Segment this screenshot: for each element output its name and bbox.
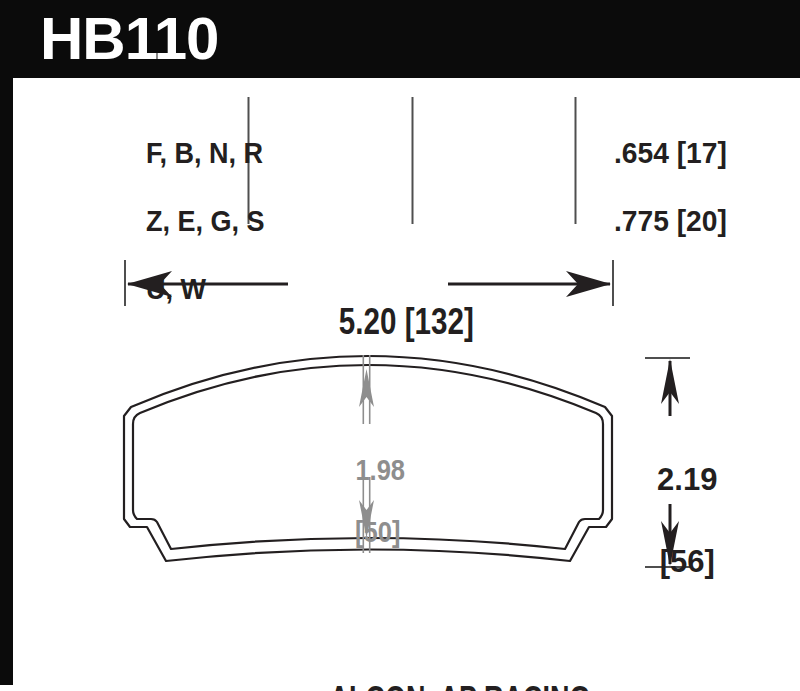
compound-line-1: F, B, N, R <box>146 136 263 169</box>
caliper-applications-caption: ALCON, AP RACING <box>246 643 580 691</box>
compound-codes-lines: F, B, N, R Z, E, G, S U, W <box>146 136 265 306</box>
compound-line-2: Z, E, G, S <box>146 204 265 237</box>
height-dimension-label: 2.19 [56] <box>610 418 730 623</box>
spec-sheet: HB110 <box>0 0 800 691</box>
pad-thickness-lines: .654 [17] .775 [20] <box>614 136 727 238</box>
compound-line-3: U, W <box>146 272 206 305</box>
center-mm: [50] <box>355 517 400 548</box>
center-dimension-label: 1.98 [50] <box>320 424 380 579</box>
width-dimension-label: 5.20 [132] <box>281 262 455 382</box>
table-divider-rules <box>249 97 576 224</box>
compound-codes: F, B, N, R Z, E, G, S U, W <box>113 102 278 340</box>
pad-thickness-values: .654 [17] .775 [20] <box>581 102 734 272</box>
thickness-line-1: .654 [17] <box>614 136 727 169</box>
height-mm: [56] <box>660 544 715 579</box>
thickness-line-2: .775 [20] <box>614 204 727 237</box>
center-value: 1.98 <box>356 455 406 486</box>
height-value: 2.19 <box>657 462 717 497</box>
